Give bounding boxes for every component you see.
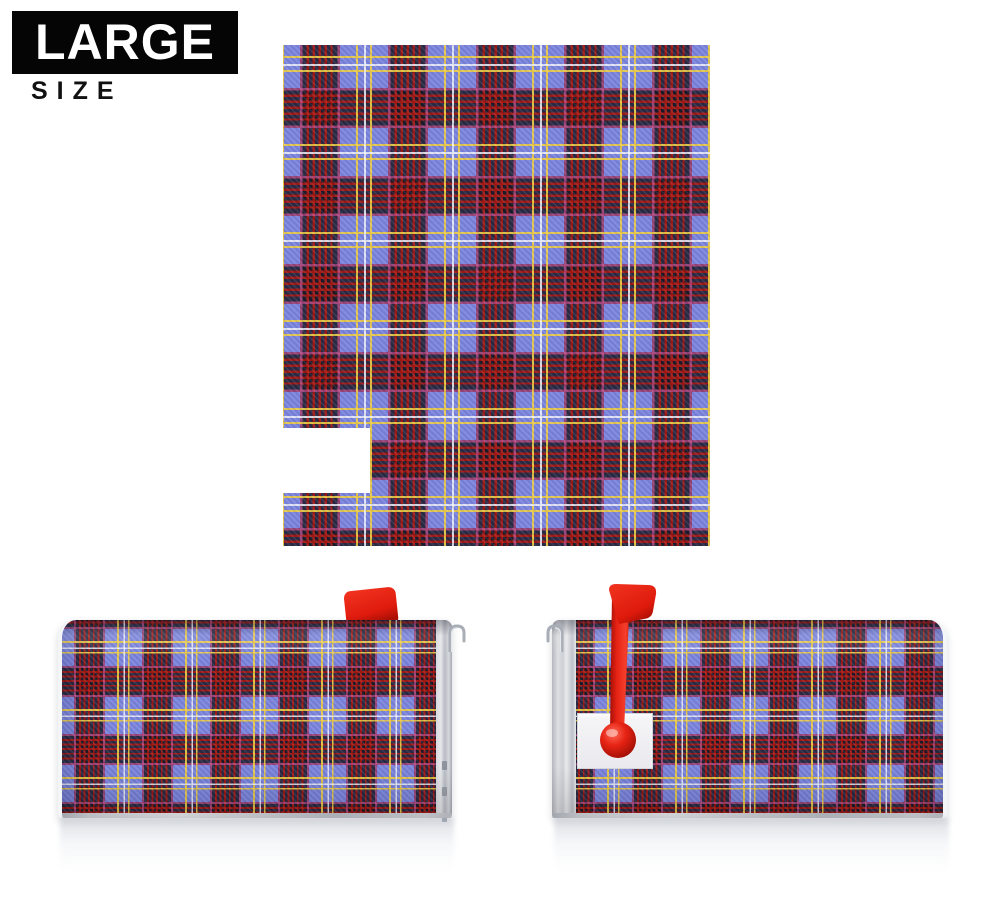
curvature-shading — [62, 620, 452, 818]
product-image: LARGE SIZE — [0, 0, 1000, 902]
mailbox-flag-up-view — [540, 580, 960, 880]
badge-subtitle-label: SIZE — [31, 77, 238, 106]
mailbox-side-view — [58, 580, 470, 880]
large-size-badge: LARGE SIZE — [12, 11, 238, 106]
badge-title-label: LARGE — [35, 11, 215, 74]
flat-cover-view — [283, 45, 710, 546]
badge-title-box: LARGE — [12, 11, 238, 74]
hook-icon — [542, 622, 566, 652]
mailbox-flag-up-icon — [589, 582, 669, 767]
mailbox-body — [58, 620, 452, 818]
reflection — [60, 818, 454, 874]
latch-detail — [442, 761, 447, 770]
hook-icon — [446, 622, 470, 652]
reflection — [554, 818, 949, 874]
flag-slot-cutout — [283, 428, 370, 493]
